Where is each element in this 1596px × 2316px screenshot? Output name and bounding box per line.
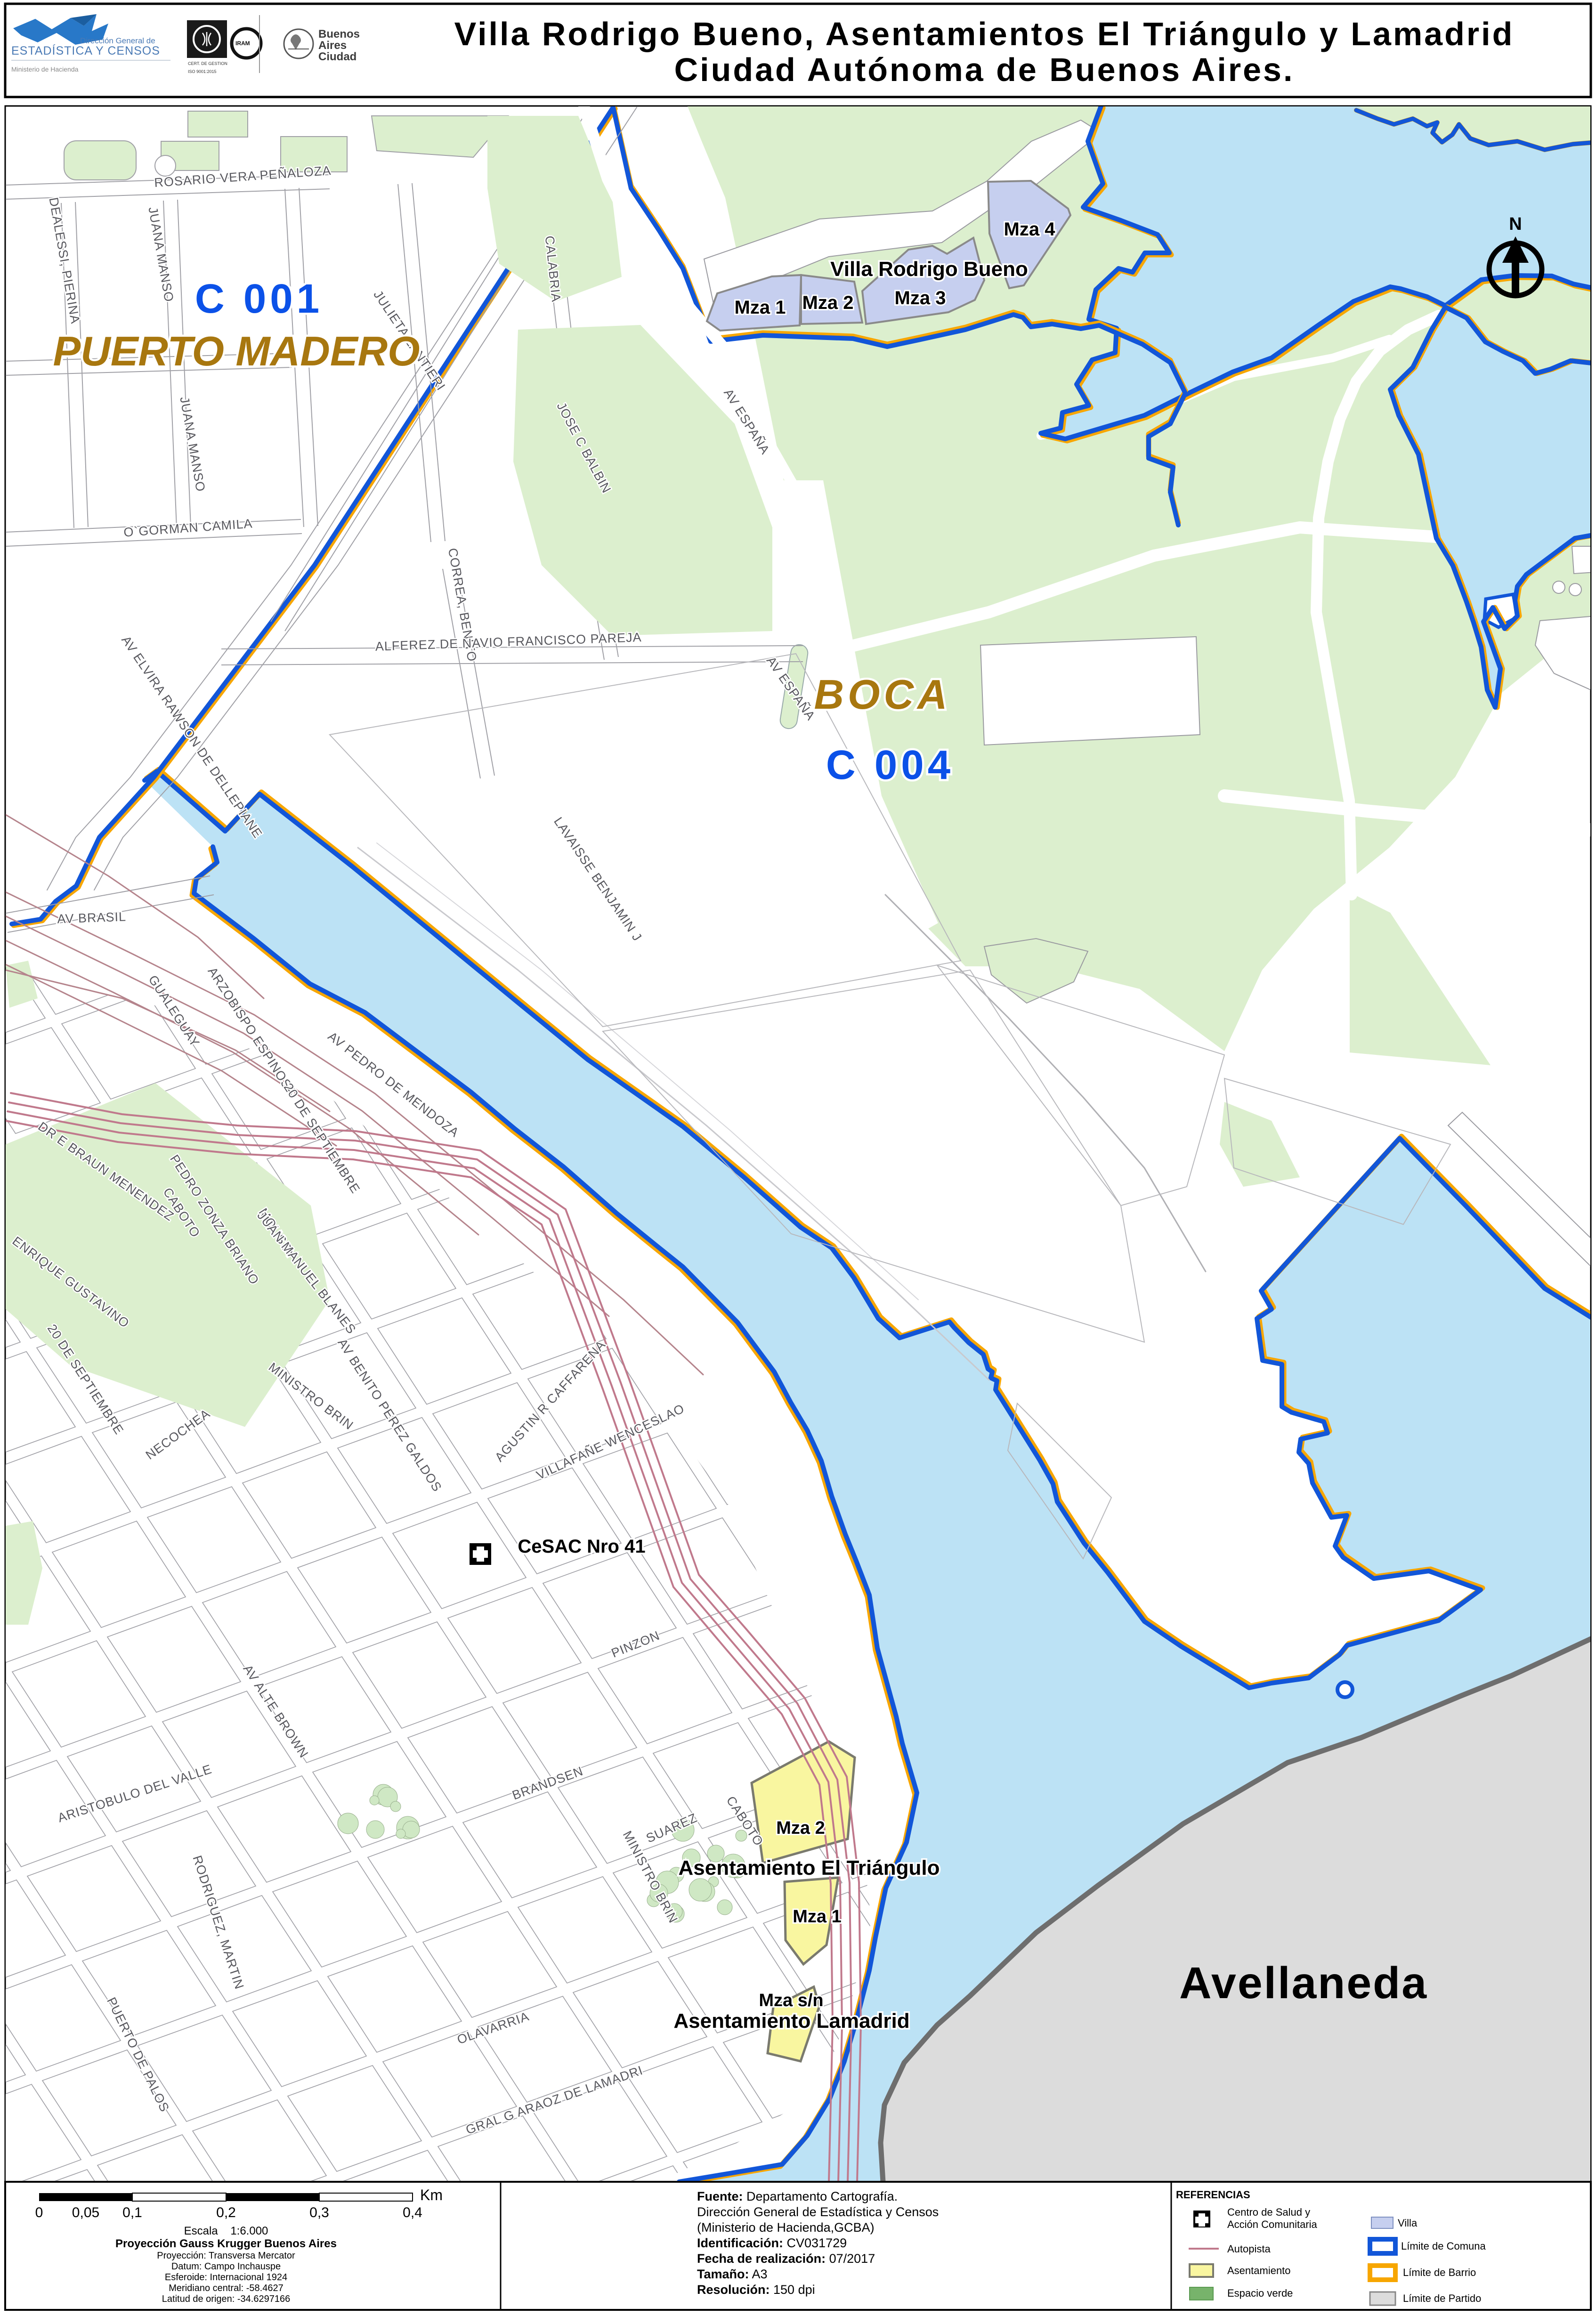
svg-text:IRAM: IRAM (235, 40, 250, 47)
svg-text:CeSAC Nro 41: CeSAC Nro 41 (518, 1536, 645, 1557)
svg-text:Resolución: 150 dpi: Resolución: 150 dpi (697, 2283, 815, 2297)
svg-text:Fecha de realización: 07/2017: Fecha de realización: 07/2017 (697, 2251, 875, 2266)
svg-text:0: 0 (35, 2205, 43, 2220)
svg-text:Identificación: CV031729: Identificación: CV031729 (697, 2236, 847, 2250)
svg-text:C 004: C 004 (826, 742, 954, 788)
svg-text:Ciudad: Ciudad (318, 50, 356, 63)
svg-text:Ministerio de Hacienda: Ministerio de Hacienda (11, 65, 79, 73)
svg-text:Mza 2: Mza 2 (776, 1818, 825, 1838)
svg-text:C 001: C 001 (195, 276, 323, 322)
svg-text:Asentamiento El Triángulo: Asentamiento El Triángulo (679, 1856, 940, 1879)
svg-text:Ciudad Autónoma de Buenos Aire: Ciudad Autónoma de Buenos Aires. (674, 51, 1295, 88)
svg-text:Tamaño: A3: Tamaño: A3 (697, 2267, 768, 2281)
svg-text:Villa Rodrigo Bueno: Villa Rodrigo Bueno (830, 258, 1028, 281)
svg-text:0,2: 0,2 (216, 2205, 236, 2220)
svg-text:Mza s/n: Mza s/n (759, 1991, 823, 2010)
svg-text:Km: Km (420, 2186, 443, 2203)
svg-text:0,4: 0,4 (403, 2205, 422, 2220)
svg-text:BOCA: BOCA (814, 671, 951, 718)
svg-text:Mza 1: Mza 1 (793, 1907, 841, 1927)
svg-text:ISO 9001:2015: ISO 9001:2015 (188, 69, 217, 74)
svg-text:PUERTO MADERO: PUERTO MADERO (53, 328, 420, 374)
svg-text:ESTADÍSTICA Y CENSOS: ESTADÍSTICA Y CENSOS (11, 44, 160, 57)
svg-text:Aires: Aires (318, 39, 347, 52)
svg-text:Límite de Barrio: Límite de Barrio (1403, 2267, 1476, 2278)
svg-text:AV BRASIL: AV BRASIL (57, 909, 127, 926)
svg-text:Proyección: Transversa Mercato: Proyección: Transversa Mercator (157, 2251, 295, 2261)
svg-text:Datum: Campo Inchauspe: Datum: Campo Inchauspe (171, 2261, 281, 2272)
svg-text:0,1: 0,1 (122, 2205, 142, 2220)
svg-text:Asentamiento Lamadrid: Asentamiento Lamadrid (673, 2009, 909, 2033)
svg-text:Dirección General de Estadísti: Dirección General de Estadística y Censo… (697, 2205, 939, 2219)
svg-text:Villa Rodrigo Bueno, Asentamie: Villa Rodrigo Bueno, Asentamientos El Tr… (454, 16, 1515, 52)
svg-text:N: N (1509, 214, 1522, 234)
svg-text:Centro de Salud y: Centro de Salud y (1227, 2206, 1310, 2218)
svg-text:Latitud de origen: -34.6297166: Latitud de origen: -34.6297166 (162, 2294, 290, 2304)
svg-text:Acción Comunitaria: Acción Comunitaria (1227, 2219, 1318, 2230)
svg-text:0,3: 0,3 (309, 2205, 329, 2220)
svg-text:Villa: Villa (1398, 2217, 1418, 2229)
svg-text:Buenos: Buenos (318, 28, 360, 40)
svg-text:Escala 1:6.000: Escala 1:6.000 (184, 2225, 268, 2237)
svg-text:Fuente: Departamento Cartograf: Fuente: Departamento Cartografía. (697, 2189, 898, 2203)
svg-text:Mza 2: Mza 2 (802, 292, 854, 313)
svg-text:REFERENCIAS: REFERENCIAS (1176, 2189, 1250, 2201)
svg-text:Proyección Gauss Krugger Bueno: Proyección Gauss Krugger Buenos Aires (115, 2237, 337, 2250)
svg-text:Espacio verde: Espacio verde (1227, 2287, 1293, 2299)
svg-text:Esferoide: Internacional 1924: Esferoide: Internacional 1924 (165, 2272, 287, 2283)
svg-text:Asentamiento: Asentamiento (1227, 2265, 1291, 2276)
svg-text:CERT. DE GESTION: CERT. DE GESTION (188, 61, 227, 66)
svg-text:Límite de Comuna: Límite de Comuna (1401, 2240, 1486, 2252)
svg-text:0,05: 0,05 (72, 2205, 99, 2220)
svg-text:(Ministerio de Hacienda,GCBA): (Ministerio de Hacienda,GCBA) (697, 2220, 875, 2235)
svg-text:Mza 1: Mza 1 (735, 297, 786, 318)
svg-text:Mza 3: Mza 3 (895, 288, 946, 308)
svg-text:Autopista: Autopista (1227, 2243, 1271, 2255)
svg-text:Mza 4: Mza 4 (1004, 219, 1056, 240)
svg-text:Límite de Partido: Límite de Partido (1403, 2292, 1481, 2304)
svg-text:Avellaneda: Avellaneda (1179, 1958, 1428, 2008)
svg-text:Meridiano central: -58.4627: Meridiano central: -58.4627 (169, 2283, 283, 2293)
